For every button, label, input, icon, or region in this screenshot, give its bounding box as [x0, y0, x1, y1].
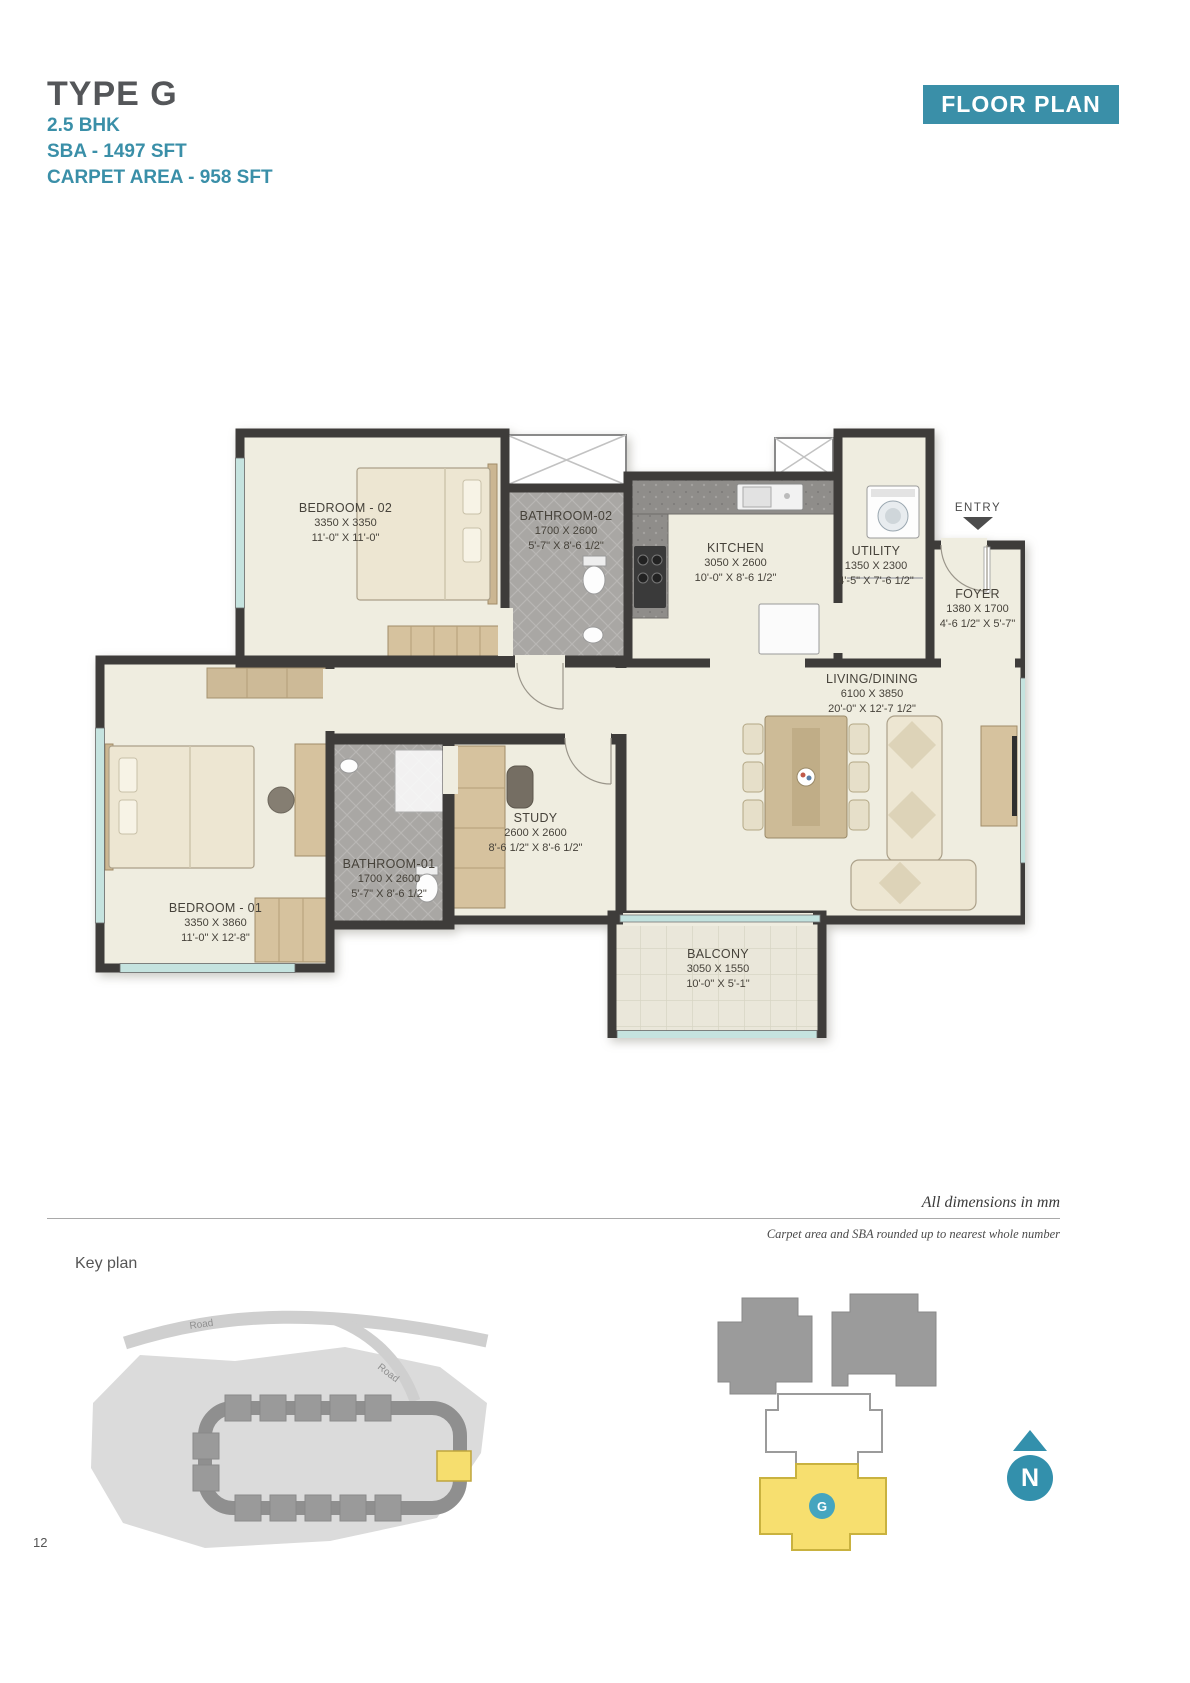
road-label-1: Road: [189, 1318, 214, 1332]
page-title: TYPE G: [47, 75, 178, 114]
entry-arrow-icon: [963, 517, 993, 530]
tower-wing-left: [718, 1298, 812, 1394]
north-indicator: N: [1007, 1430, 1053, 1501]
sba-label: SBA - 1497 SFT: [47, 141, 187, 163]
floor-plan-drawing: [95, 428, 1025, 1038]
floor-plan: BEDROOM - 02 3350 X 3350 11'-0" X 11'-0"…: [95, 428, 1025, 1038]
divider-line: [47, 1218, 1060, 1219]
highlighted-building: [437, 1451, 471, 1481]
north-circle: N: [1007, 1455, 1053, 1501]
unit-marker-label: G: [817, 1499, 827, 1514]
carpet-area-label: CARPET AREA - 958 SFT: [47, 167, 273, 189]
rounding-note: Carpet area and SBA rounded up to neares…: [460, 1227, 1060, 1242]
tower-unit-middle: [766, 1394, 882, 1464]
entry-label: ENTRY: [923, 502, 1033, 530]
site-keyplan-map: Road Road: [85, 1283, 495, 1558]
brochure-page: TYPE G 2.5 BHK SBA - 1497 SFT CARPET ARE…: [0, 0, 1190, 1683]
north-arrow-icon: [1013, 1430, 1047, 1451]
tower-keyplan: G: [700, 1282, 955, 1572]
floor-plan-badge: FLOOR PLAN: [923, 85, 1119, 124]
tower-wing-right: [832, 1294, 936, 1386]
bhk-label: 2.5 BHK: [47, 115, 120, 137]
page-number: 12: [33, 1535, 47, 1550]
dimensions-note: All dimensions in mm: [560, 1194, 1060, 1212]
road-band-1: [125, 1317, 487, 1343]
keyplan-label: Key plan: [75, 1255, 137, 1273]
